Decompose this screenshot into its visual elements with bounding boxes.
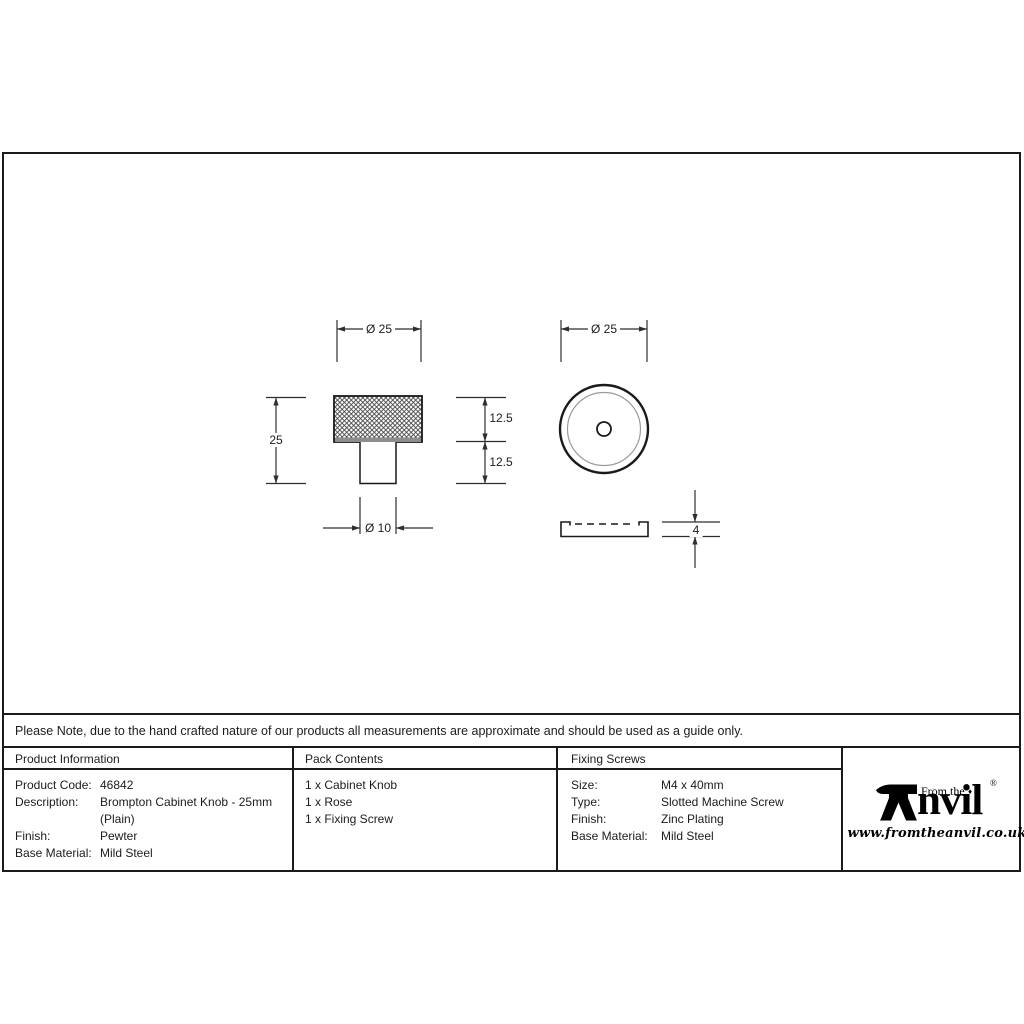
row-label: Size: (571, 777, 661, 794)
row-value: Mild Steel (100, 845, 292, 862)
list-item: 1 x Cabinet Knob (305, 777, 556, 794)
spec-table: Product Information Product Code: 46842 … (2, 746, 1021, 872)
table-row: Description: Brompton Cabinet Knob - 25m… (15, 794, 292, 811)
row-label: Product Code: (15, 777, 100, 794)
knob-shape (334, 396, 422, 484)
dim-head-height: 12.5 (489, 412, 512, 424)
product-information-header: Product Information (4, 748, 292, 770)
table-row: Size: M4 x 40mm (571, 777, 841, 794)
anvil-icon (874, 782, 920, 822)
dim-rose-thickness: 4 (690, 523, 703, 537)
table-row: Finish: Pewter (15, 828, 292, 845)
row-label: Base Material: (15, 845, 100, 862)
brand-logo-cell: From the ♦ nvil ® www.fromtheanvil.co.uk (843, 748, 1019, 870)
row-value: Pewter (100, 828, 292, 845)
table-row: Type: Slotted Machine Screw (571, 794, 841, 811)
knob-stem (360, 442, 396, 484)
table-row: Finish: Zinc Plating (571, 811, 841, 828)
dim-top-diameter: Ø 25 (588, 322, 620, 336)
product-spec-sheet: { "note": "Please Note, due to the hand … (0, 0, 1024, 1024)
pack-contents-header: Pack Contents (294, 748, 556, 770)
row-label (15, 811, 100, 828)
dim-front-diameter: Ø 25 (363, 322, 395, 336)
knob-knurled-head (334, 396, 422, 442)
dim-overall-height: 25 (266, 433, 285, 447)
row-value: (Plain) (100, 811, 292, 828)
row-label: Base Material: (571, 828, 661, 845)
row-label: Description: (15, 794, 100, 811)
table-row: Product Code: 46842 (15, 777, 292, 794)
pack-contents-column: Pack Contents 1 x Cabinet Knob 1 x Rose … (294, 748, 558, 870)
product-information-column: Product Information Product Code: 46842 … (4, 748, 294, 870)
row-value: Zinc Plating (661, 811, 841, 828)
list-item: 1 x Fixing Screw (305, 811, 556, 828)
row-value: Slotted Machine Screw (661, 794, 841, 811)
row-value: Brompton Cabinet Knob - 25mm (100, 794, 292, 811)
from-the-anvil-logo: From the ♦ nvil ® www.fromtheanvil.co.uk (843, 748, 1019, 870)
list-item: 1 x Rose (305, 794, 556, 811)
dim-stem-height: 12.5 (489, 456, 512, 468)
table-row: Base Material: Mild Steel (571, 828, 841, 845)
rose-center-hole (597, 422, 611, 436)
technical-drawing-linework (4, 154, 1019, 713)
dim-stem-diameter: Ø 10 (362, 521, 394, 535)
row-value: 46842 (100, 777, 292, 794)
top-view-rose (560, 320, 648, 473)
technical-drawing-box: Ø 25 Ø 25 25 12.5 12.5 Ø 10 4 (2, 152, 1021, 715)
row-value: Mild Steel (661, 828, 841, 845)
row-value: M4 x 40mm (661, 777, 841, 794)
measurement-note: Please Note, due to the hand crafted nat… (2, 713, 1021, 748)
fixing-screws-header: Fixing Screws (558, 748, 841, 770)
fixing-screws-column: Fixing Screws Size: M4 x 40mm Type: Slot… (558, 748, 843, 870)
table-row: Base Material: Mild Steel (15, 845, 292, 862)
registered-trademark-icon: ® (990, 778, 997, 788)
rose-outer-circle (560, 385, 648, 473)
logo-brand-text: nvil (917, 779, 982, 822)
measurement-note-text: Please Note, due to the hand crafted nat… (15, 724, 743, 738)
knob-head-base-band (335, 438, 421, 443)
logo-website-url: www.fromtheanvil.co.uk (848, 826, 1024, 841)
rose-inner-circle (568, 393, 641, 466)
row-label: Finish: (15, 828, 100, 845)
table-row: (Plain) (15, 811, 292, 828)
row-label: Type: (571, 794, 661, 811)
row-label: Finish: (571, 811, 661, 828)
